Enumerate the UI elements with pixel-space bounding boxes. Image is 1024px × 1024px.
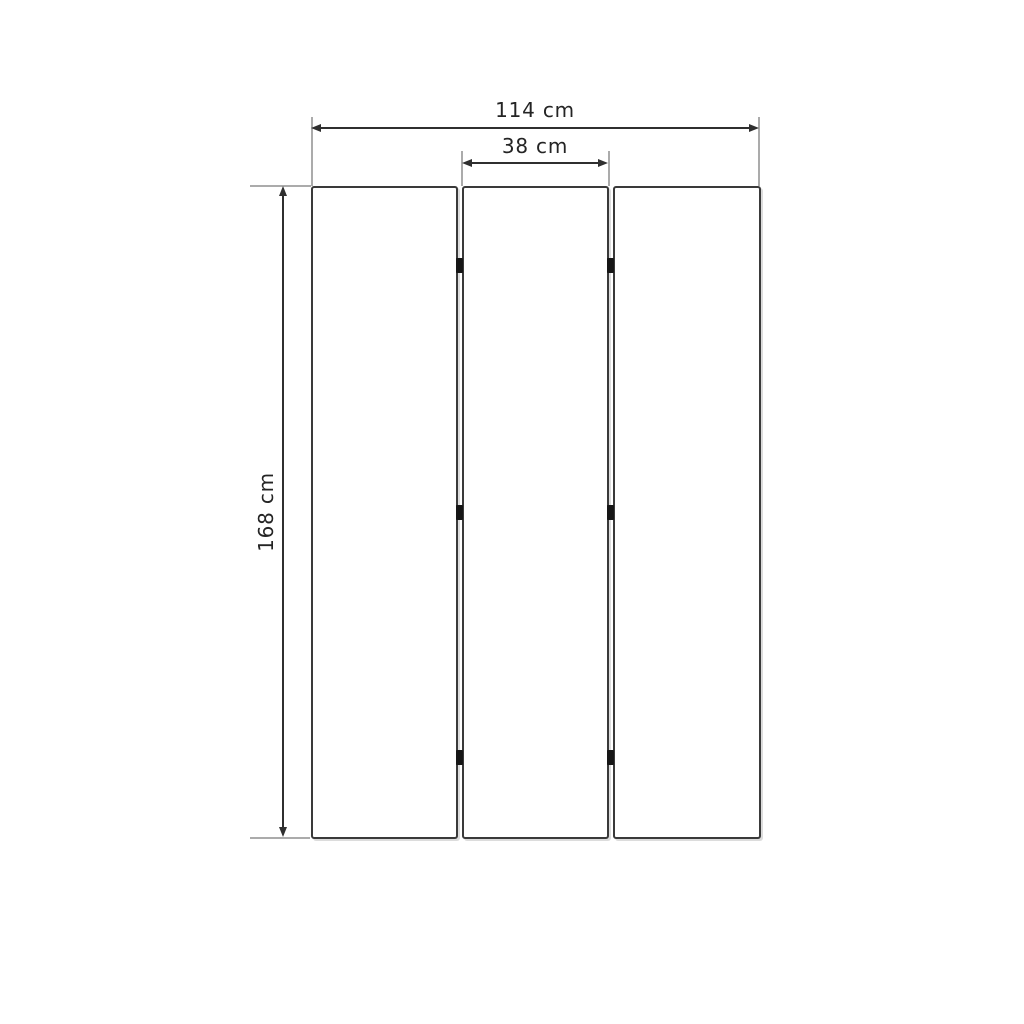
arrowhead-left-icon	[462, 159, 472, 167]
hinge-mark	[456, 505, 463, 520]
dim-total-width-line	[318, 127, 752, 129]
hinge-mark	[456, 258, 463, 273]
panel-right	[613, 186, 761, 839]
arrowhead-left-icon	[311, 124, 321, 132]
hinge-mark	[456, 750, 463, 765]
arrowhead-down-icon	[279, 827, 287, 837]
dim-panel-width-line	[469, 162, 601, 164]
dim-total-width-label: 114 cm	[495, 98, 575, 122]
hinge-mark	[607, 505, 614, 520]
extension-line	[608, 151, 610, 186]
hinge-mark	[607, 750, 614, 765]
arrowhead-up-icon	[279, 186, 287, 196]
dim-height-label: 168 cm	[254, 472, 278, 552]
dim-height-line	[282, 193, 284, 829]
dimension-diagram: 114 cm 38 cm 168 cm	[0, 0, 1024, 1024]
arrowhead-right-icon	[749, 124, 759, 132]
extension-line	[461, 151, 463, 186]
extension-line	[250, 837, 310, 839]
panel-middle	[462, 186, 609, 839]
dim-panel-width-label: 38 cm	[502, 134, 568, 158]
panel-left	[311, 186, 458, 839]
hinge-mark	[607, 258, 614, 273]
arrowhead-right-icon	[598, 159, 608, 167]
